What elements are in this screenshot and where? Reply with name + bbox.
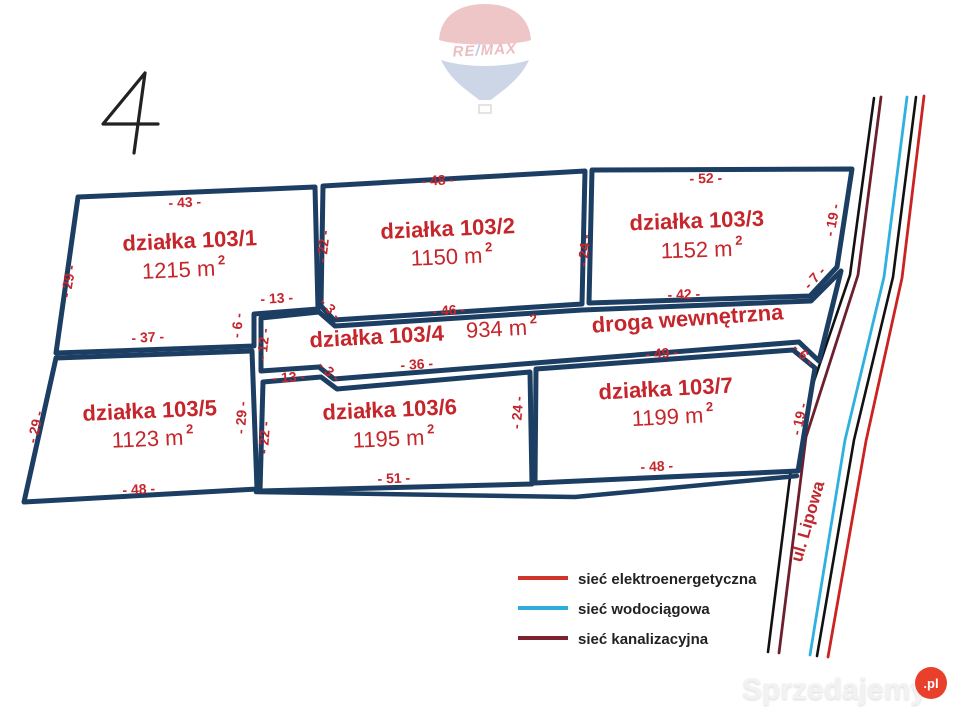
street-name-label: ul. Lipowa [787, 478, 828, 564]
dim-p1-notch-side: - 6 - [228, 312, 247, 339]
dim-p3-bottom: - 42 - [667, 285, 701, 302]
dim-p1-bottom: - 37 - [131, 328, 165, 346]
dim-p6-left: - 22 - [255, 420, 273, 454]
watermark-brand-text: Sprzedajemy [742, 673, 927, 706]
plot-map-image: RE/MAX - 43 - - 29 - - 37 - - 13 - - 6 -… [0, 0, 960, 720]
plot-area-103-3: 1152 m2 [660, 233, 743, 264]
legend-label-sewage: sieć kanalizacyjna [578, 631, 709, 648]
remax-logo-text: RE/MAX [452, 40, 517, 60]
watermark-tld-text: .pl [923, 676, 938, 691]
page-number-4 [103, 73, 158, 153]
cadastral-map-svg: RE/MAX - 43 - - 29 - - 37 - - 13 - - 6 -… [0, 0, 960, 720]
dim-p6-right: - 24 - [508, 395, 527, 429]
utilities-legend: sieć elektroenergetyczna sieć wodociągow… [518, 571, 757, 648]
dim-p2-bottom: - 46 - [432, 301, 466, 319]
dim-p6-bottom: - 51 - [377, 469, 411, 486]
remax-balloon-watermark: RE/MAX [439, 4, 531, 113]
balloon-bottom-blue [441, 60, 529, 100]
legend-label-water: sieć wodociągowa [578, 601, 710, 618]
legend-label-electric: sieć elektroenergetyczna [578, 571, 757, 588]
dim-p1-notch-top: - 13 - [260, 289, 294, 307]
dim-p7-top: - 49 - [645, 344, 679, 362]
dim-p5-right: - 29 - [232, 400, 250, 434]
dim-p1-top: - 43 - [168, 193, 202, 210]
dim-p4-bottom: - 36 - [400, 355, 434, 373]
dim-p5-bottom: - 48 - [122, 480, 156, 498]
plot-name-103-3: działka 103/3 [629, 206, 764, 236]
dim-p7-bottom: - 48 - [640, 457, 674, 474]
dim-p2-top: - 48 - [421, 171, 455, 189]
dim-p4-bottom-left: - 13 - [272, 368, 306, 386]
dim-p3-top: - 52 - [689, 170, 722, 187]
balloon-top-red [439, 4, 531, 45]
sprzedajemy-watermark: Sprzedajemy .pl [742, 667, 947, 706]
balloon-basket [479, 105, 491, 113]
